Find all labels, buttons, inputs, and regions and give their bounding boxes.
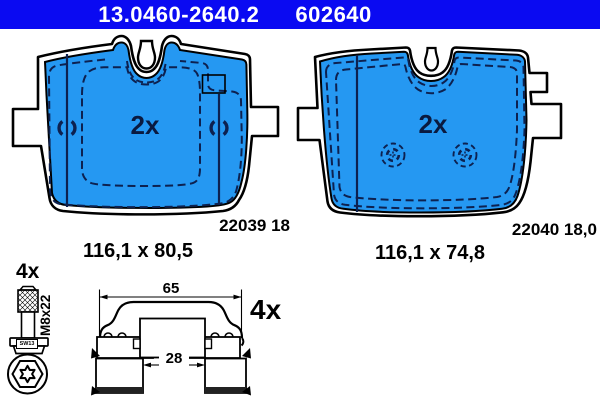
brake-pad-technical-drawing: 13.0460-2640.2 602640	[0, 0, 600, 400]
bolt-thread	[18, 290, 38, 312]
guide-tab	[138, 41, 155, 69]
drawing-canvas	[0, 0, 600, 400]
left-pad-dimensions: 116,1 x 80,5	[68, 241, 208, 261]
right-pad-dimensions: 116,1 x 74,8	[360, 243, 500, 263]
clip-outer-width-value: 65	[152, 281, 190, 296]
clip-inner-width-value: 28	[159, 351, 189, 366]
bolt-quantity: 4x	[16, 261, 39, 282]
clip-side-notch-right	[205, 339, 212, 349]
catalog-number: 13.0460-2640.2	[98, 2, 259, 28]
right-pad-part-code: 22040 18,0	[495, 221, 597, 238]
title-bar: 13.0460-2640.2 602640	[0, 0, 600, 29]
clip-pad-surface-left	[96, 387, 143, 394]
left-pad-part-code: 22039 18	[193, 217, 290, 234]
reference-number: 602640	[295, 2, 371, 28]
clip-side-notch-left	[134, 339, 141, 349]
left-pad-quantity: 2x	[122, 112, 168, 138]
bolt-torx-socket	[20, 366, 34, 382]
guide-tab	[425, 48, 438, 71]
bolt-wrench-size: SW13	[16, 339, 38, 349]
clip-quantity: 4x	[250, 296, 281, 324]
right-pad-quantity: 2x	[410, 111, 456, 137]
clip-drawing	[91, 290, 251, 396]
bolt-thread-spec: M8x22	[39, 286, 55, 344]
bolt-shank	[22, 312, 35, 338]
clip-pad-surface-right	[205, 387, 246, 394]
